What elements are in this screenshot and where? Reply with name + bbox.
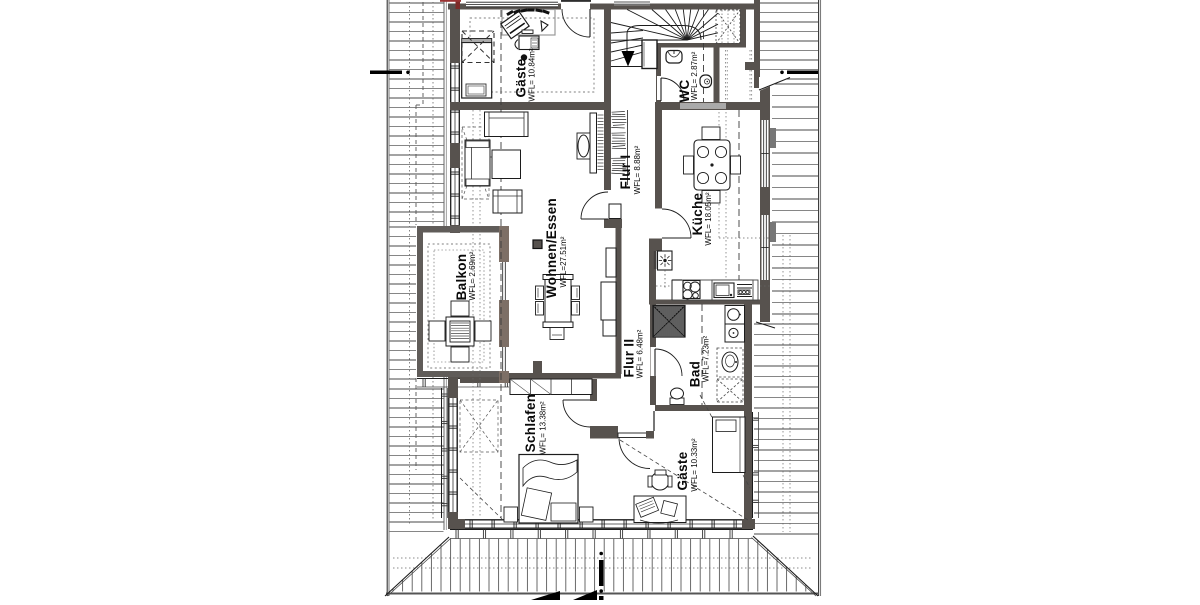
svg-text:Gäste: Gäste	[514, 58, 529, 97]
svg-text:Balkon: Balkon	[454, 254, 469, 301]
svg-text:WFL= 2.87m²: WFL= 2.87m²	[690, 51, 699, 100]
svg-text:Flur II: Flur II	[622, 339, 637, 378]
svg-text:WFL= 10.33m²: WFL= 10.33m²	[690, 438, 699, 491]
svg-text:WFL= 10.84m²: WFL= 10.84m²	[528, 48, 537, 101]
svg-text:Flur I: Flur I	[618, 155, 633, 190]
svg-text:WFL= 6.48m²: WFL= 6.48m²	[636, 329, 645, 378]
svg-text:WFL=27.51m²: WFL=27.51m²	[559, 236, 568, 287]
svg-text:Bad: Bad	[688, 361, 703, 387]
svg-text:Wohnen/Essen: Wohnen/Essen	[544, 198, 559, 298]
svg-text:WFL=7.23m²: WFL=7.23m²	[702, 335, 711, 382]
svg-text:WFL= 8.88m²: WFL= 8.88m²	[633, 145, 642, 194]
svg-text:WFL= 2.69m²: WFL= 2.69m²	[468, 251, 477, 300]
svg-text:Schlafen: Schlafen	[523, 394, 538, 453]
svg-text:Gäste: Gäste	[675, 451, 690, 490]
svg-text:Küche: Küche	[690, 192, 705, 235]
svg-text:WFL= 18.05m²: WFL= 18.05m²	[704, 192, 713, 245]
svg-text:WFL= 13.38m²: WFL= 13.38m²	[539, 401, 548, 454]
